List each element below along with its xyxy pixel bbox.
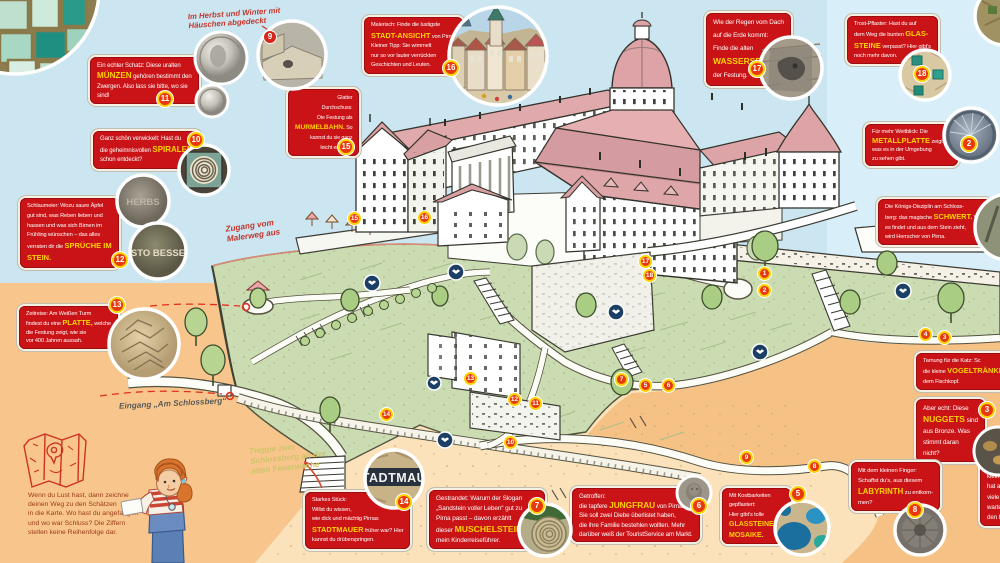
svg-text:TADTMAU: TADTMAU bbox=[362, 471, 426, 485]
svg-text:HERBS: HERBS bbox=[126, 197, 159, 208]
svg-text:STO BESSE: STO BESSE bbox=[131, 248, 185, 259]
